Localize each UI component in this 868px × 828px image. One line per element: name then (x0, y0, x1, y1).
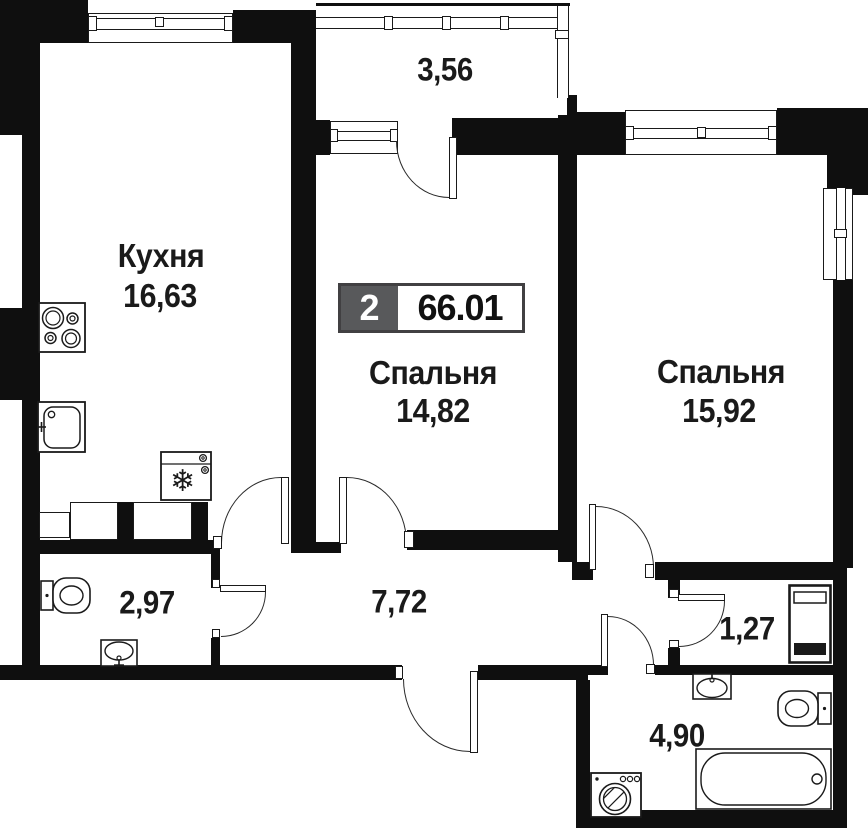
kitchen-counter (70, 502, 118, 540)
wall-segment (291, 542, 341, 553)
window-mullion (768, 126, 777, 140)
wall-segment (827, 108, 868, 195)
wall-segment (576, 680, 590, 828)
door-leaf (601, 614, 608, 667)
door-jamb (646, 664, 655, 674)
wall-segment (233, 10, 293, 43)
wall-segment (668, 648, 680, 665)
door-swing-arc (221, 592, 266, 637)
wardrobe-icon (788, 584, 832, 664)
wall-segment (0, 20, 22, 135)
wall-segment (478, 665, 588, 680)
door-swing-arc (608, 616, 654, 665)
wall-segment (452, 118, 558, 155)
door-leaf (449, 137, 457, 199)
door-jamb (669, 640, 679, 648)
window-mullion (330, 129, 338, 142)
door-swing-arc (347, 477, 407, 543)
wall-segment (558, 115, 577, 562)
door-jamb (395, 666, 403, 679)
wall-segment (0, 308, 22, 400)
door-jamb (404, 531, 414, 548)
wall-segment (833, 568, 847, 810)
door-jamb (645, 564, 654, 578)
door-leaf (678, 594, 725, 601)
window-mullion (224, 16, 233, 31)
wall-segment (407, 530, 572, 550)
kitchen-area-label: 16,63 (123, 277, 197, 315)
wall-segment (211, 638, 220, 668)
washing-machine-icon (590, 772, 642, 818)
wall-segment (777, 108, 827, 155)
entrance-door-leaf (470, 671, 478, 753)
bathroom-small-area-label: 2,97 (119, 585, 174, 622)
door-swing-arc (596, 506, 654, 568)
window-glazing (330, 131, 398, 141)
snowflake-icon: ❄ (170, 467, 195, 497)
wall-segment (655, 665, 833, 675)
window-mullion (625, 126, 634, 140)
wall-segment (572, 112, 625, 155)
window-mullion (500, 16, 509, 30)
door-jamb (669, 589, 679, 598)
bathtub-icon (695, 748, 832, 810)
window-mullion (555, 30, 569, 39)
wall-segment (291, 10, 316, 543)
wall-segment (833, 278, 853, 568)
door-leaf (339, 477, 347, 544)
toilet-icon (40, 576, 92, 615)
door-leaf (589, 504, 596, 570)
balcony-area-label: 3,56 (417, 52, 472, 89)
kitchen-counter (39, 512, 70, 538)
kitchen-counter (133, 502, 192, 540)
window-mullion (155, 17, 164, 27)
total-area-badge: 66.01 (398, 286, 522, 330)
kitchen-sink-icon (37, 401, 86, 453)
door-jamb (212, 579, 220, 588)
door-swing-arc (221, 477, 281, 543)
door-jamb (213, 536, 222, 549)
kitchen-counter-divider (118, 502, 133, 540)
stove-icon (38, 302, 86, 353)
toilet-icon (775, 690, 832, 727)
window-mullion (88, 16, 97, 31)
bedroom2-area-label: 15,92 (682, 392, 756, 430)
wall-segment (22, 540, 220, 554)
rooms-count-badge: 2 (341, 286, 398, 330)
washbasin-icon (100, 639, 138, 667)
door-swing-arc (679, 601, 725, 647)
wall-segment (310, 120, 330, 155)
balcony-glazing (557, 6, 569, 98)
door-leaf (281, 477, 289, 544)
window-mullion (442, 16, 451, 30)
bedroom1-area-label: 14,82 (396, 392, 470, 430)
bathroom-large-area-label: 4,90 (649, 718, 704, 755)
apartment-badge: 2 66.01 (338, 283, 525, 333)
door-jamb (212, 629, 220, 638)
washbasin-icon (692, 673, 732, 700)
kitchen-counter-divider (192, 502, 208, 540)
door-leaf (220, 585, 266, 592)
floor-plan: ❄ (0, 0, 868, 828)
door-swing-arc (396, 141, 449, 198)
window-mullion (834, 229, 847, 238)
wall-segment (655, 562, 833, 580)
wall-segment (316, 3, 570, 6)
entrance-door-swing-arc (403, 679, 470, 752)
window-mullion (384, 16, 393, 30)
hallway-area-label: 7,72 (371, 584, 426, 621)
wall-segment (0, 665, 402, 680)
window-mullion (697, 127, 706, 138)
kitchen-name-label: Кухня (118, 237, 204, 275)
bedroom1-name-label: Спальня (369, 354, 497, 392)
bedroom2-name-label: Спальня (657, 353, 785, 391)
wardrobe-nook-area-label: 1,27 (719, 611, 774, 648)
